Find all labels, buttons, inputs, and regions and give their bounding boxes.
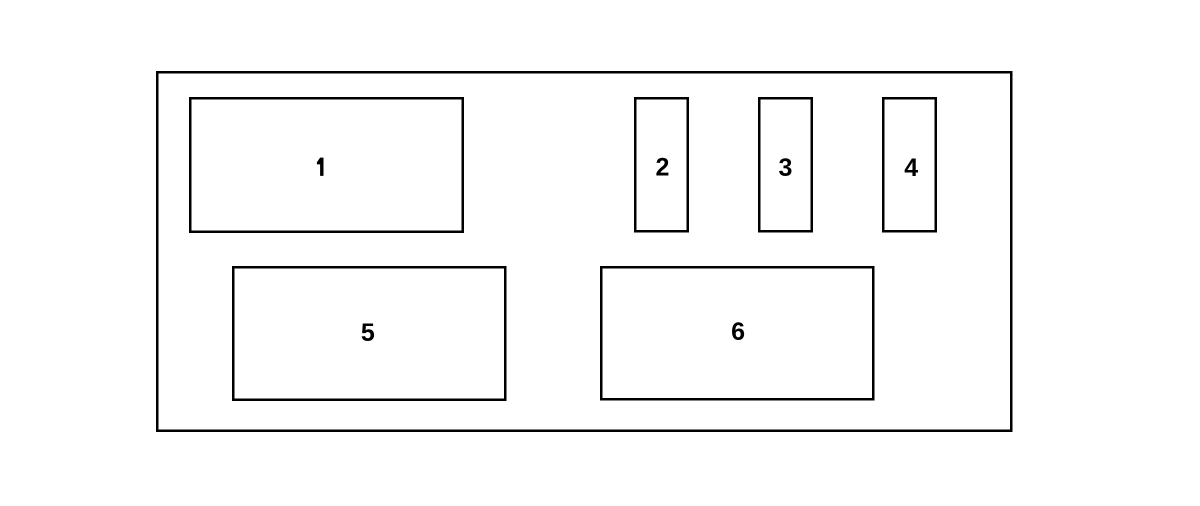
svg-text:5: 5 [361, 319, 375, 347]
svg-text:6: 6 [731, 318, 745, 346]
svg-text:3: 3 [778, 154, 792, 182]
svg-text:2: 2 [656, 154, 670, 182]
svg-text:4: 4 [904, 154, 918, 182]
